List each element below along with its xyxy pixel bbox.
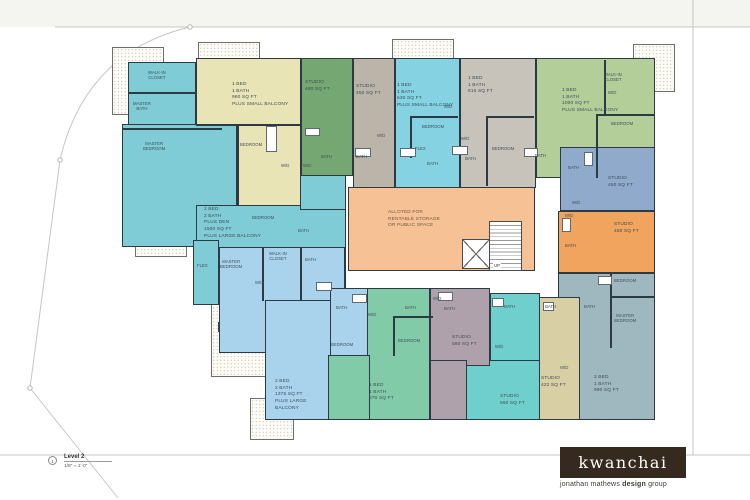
stair-icon: UP: [489, 221, 522, 271]
unit-studio-560-teal-area: [465, 360, 540, 420]
room-label: MASTER BATH: [133, 101, 151, 112]
unit-studio-560-teal-label: STUDIO 560 SQ FT: [500, 394, 538, 407]
room-label: BATH: [465, 156, 476, 161]
tagline-pre: jonathan mathews: [560, 481, 622, 488]
partition-wall: [596, 114, 598, 178]
room-label: BEDROOM: [492, 146, 514, 151]
central-storage-label: ALLOTED FOR RENTABLE STORAGE OR PUBLIC S…: [388, 210, 478, 230]
room-label: BATH: [565, 243, 576, 248]
tagline-post: group: [646, 481, 667, 488]
room-label: BEDROOM: [611, 121, 633, 126]
sheet-top-band: [0, 0, 750, 27]
room-label: FLEX: [197, 263, 208, 268]
tagline-bold: design: [622, 481, 646, 488]
room-label: BEDROOM: [398, 338, 420, 343]
unit-studio-560-mauve-area: [430, 360, 467, 420]
room-label: W/D: [303, 163, 311, 168]
fixture: [598, 276, 612, 285]
stair-up-label: UP: [493, 263, 501, 268]
unit-2bed-1500-label: 2 BED 2 BATH PLUS DEN 1500 SQ FT PLUS LA…: [204, 207, 296, 241]
partition-wall: [393, 316, 395, 356]
room-label: BATH: [356, 154, 367, 159]
unit-studio-450-orange-label: STUDIO 450 SQ FT: [614, 222, 654, 235]
room-label: BATH: [545, 304, 556, 309]
unit-studio-422-area: [538, 297, 580, 420]
fixture: [266, 126, 277, 152]
room-label: W/D: [368, 312, 376, 317]
room-label: MASTER BEDROOM: [220, 259, 242, 270]
view-number-marker: 1: [48, 456, 57, 465]
room-label: BATH: [405, 305, 416, 310]
room-label: MASTER BEDROOM: [614, 313, 636, 324]
elevator-icon: [462, 239, 490, 269]
fixture: [352, 294, 367, 303]
room-label: BATH: [305, 257, 316, 262]
partition-wall: [196, 124, 301, 126]
room-label: BATH: [336, 305, 347, 310]
room-label: BATH: [427, 161, 438, 166]
room-label: W/D: [433, 296, 441, 301]
room-label: BATH: [568, 165, 579, 170]
room-label: W/D: [608, 90, 616, 95]
fixture: [562, 218, 571, 232]
partition-wall: [393, 316, 433, 318]
room-label: W/D: [444, 104, 452, 109]
partition-wall: [262, 247, 264, 301]
fixture: [452, 146, 468, 155]
partition-wall: [237, 126, 239, 206]
room-label: W/D: [255, 280, 263, 285]
room-label: W/D: [377, 133, 385, 138]
unit-1bed-870-area: [328, 355, 370, 420]
unit-studio-450-blue-label: STUDIO 450 SQ FT: [608, 176, 650, 189]
unit-studio-422-label: STUDIO 422 SQ FT: [541, 376, 579, 389]
room-label: BATH: [584, 304, 595, 309]
logo-tagline: jonathan mathews design group: [560, 481, 667, 488]
unit-studio-450-top-area: [353, 58, 395, 190]
kwanchai-logo: kwanchai: [560, 447, 686, 478]
room-label: BATH: [504, 304, 515, 309]
partition-wall: [610, 296, 655, 298]
unit-studio-480-label: STUDIO 480 SQ FT: [305, 80, 351, 93]
unit-2bed-990-label: 2 BED 1 BATH 990 SQ FT: [594, 375, 640, 395]
room-label: BATH: [535, 153, 546, 158]
level-title: Level 2: [64, 454, 112, 462]
fixture: [305, 128, 320, 136]
unit-2bed-1375-label: 2 BED 2 BATH 1375 SQ FT PLUS LARGE BALCO…: [275, 379, 331, 413]
unit-studio-450-top-label: STUDIO 450 SQ FT: [356, 84, 396, 97]
room-label: BEDROOM: [240, 142, 262, 147]
unit-studio-450-orange-area: [558, 211, 655, 273]
room-label: BEDROOM: [614, 278, 636, 283]
room-label: W/D: [461, 136, 469, 141]
room-label: BEDROOM: [422, 124, 444, 129]
room-label: FLEX: [415, 146, 426, 151]
partition-wall: [410, 116, 458, 118]
floor-plan-sheet: UP 2 BED 2 BATH PLUS DEN 1500 SQ FT PLUS…: [0, 0, 750, 500]
unit-2bed-1500-area: [193, 240, 219, 305]
unit-1bed-870-label: 1 BED 1 BATH 870 SQ FT: [369, 383, 415, 403]
room-label: BATH: [298, 228, 309, 233]
logo-brand-text: kwanchai: [578, 453, 667, 472]
unit-1bed-1000-label: 1 BED 1 BATH 1000 SQ FT PLUS SMALL BALCO…: [562, 88, 652, 115]
room-label: BATH: [444, 306, 455, 311]
room-label: MASTER BEDROOM: [143, 141, 165, 152]
room-label: BATH: [321, 154, 332, 159]
room-label: W/D: [572, 200, 580, 205]
partition-wall: [300, 247, 302, 301]
room-label: W/D: [560, 365, 568, 370]
scale-label: 1/8" = 1'-0": [64, 464, 87, 469]
unit-studio-560-mauve-label: STUDIO 560 SQ FT: [452, 335, 490, 348]
partition-wall: [128, 92, 196, 94]
room-label: W/D: [281, 163, 289, 168]
fixture: [316, 282, 332, 291]
partition-wall: [486, 116, 534, 118]
room-label: WALK-IN CLOSET: [148, 70, 166, 81]
partition-wall: [122, 128, 222, 130]
unit-1bed-615-label: 1 BED 1 BATH 615 SQ FT: [468, 76, 518, 96]
fixture: [584, 152, 593, 166]
room-label: W/D: [495, 344, 503, 349]
partition-wall: [486, 116, 488, 186]
room-label: W/D: [565, 213, 573, 218]
fixture: [400, 148, 416, 157]
room-label: BEDROOM: [331, 342, 353, 347]
room-label: WALK-IN CLOSET: [269, 251, 287, 262]
fixture: [492, 298, 504, 307]
room-label: WALK-IN CLOSET: [604, 72, 622, 83]
unit-1bed-630-area: [395, 58, 460, 188]
room-label: BEDROOM: [252, 215, 274, 220]
